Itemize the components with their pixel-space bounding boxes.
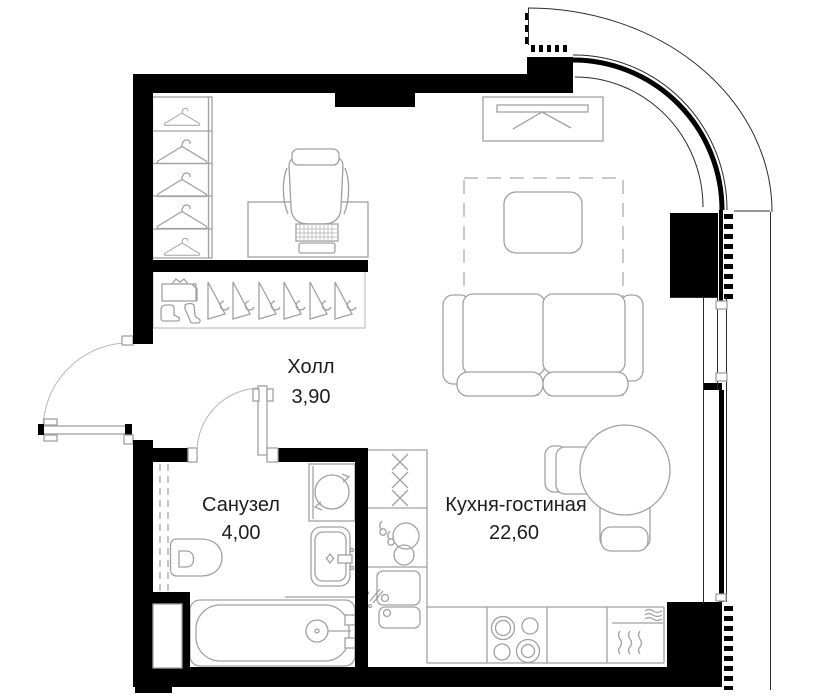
bath-faucet-icon [345,615,355,625]
floor-plan: Холл 3,90 Санузел 4,00 Кухня-гостиная 22… [0,0,817,700]
tv-console [483,97,603,141]
coat-rack [153,270,365,328]
dishwasher-icon [380,521,419,565]
right-window [670,297,727,602]
floor-plan-drawing: Холл 3,90 Санузел 4,00 Кухня-гостиная 22… [0,0,817,700]
dining-table [580,425,670,515]
shirt-box-icon [162,279,197,301]
door-handle-icon [253,389,259,401]
boots-icon [161,304,200,324]
room-area-hall: 3,90 [292,386,331,408]
kitchen-sink [366,571,421,628]
coat-hook-icon [208,282,356,319]
door-handle-icon [267,389,273,401]
dining-set [545,425,670,551]
sofa [443,294,643,396]
office-chair [283,149,348,224]
bath-faucet-icon [345,638,355,648]
duct-niche [153,604,182,668]
washing-machine [309,464,355,521]
coffee-table [504,192,582,253]
room-label-kitchen-living: Кухня-гостиная [445,494,587,516]
bathroom-duct [160,464,168,598]
bathroom-door [197,386,273,455]
room-area-bathroom: 4,00 [222,522,261,544]
radiator-icon [612,610,663,655]
room-label-hall: Холл [287,356,334,378]
kitchen-column [366,450,428,663]
keyboard [296,224,338,253]
bathtub [190,597,355,666]
door-handle-icon [44,419,57,425]
kitchen-counter [427,607,664,663]
room-area-kitchen-living: 22,60 [489,522,539,544]
bathroom-sink [311,527,354,586]
entry-door [38,336,133,444]
toilet [171,539,223,576]
dining-chair [601,527,648,551]
room-label-bathroom: Санузел [202,494,280,516]
hob-burners [492,617,540,663]
appliance-x-icon [392,454,408,506]
door-handle-icon [44,435,57,441]
